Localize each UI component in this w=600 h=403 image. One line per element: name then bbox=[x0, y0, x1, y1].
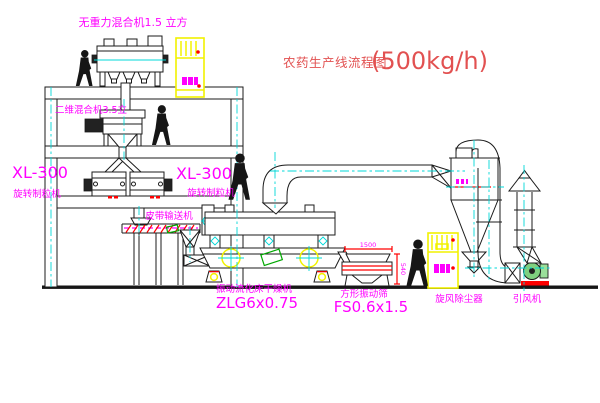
person-figure bbox=[152, 105, 170, 145]
label-granulator-left-name: 旋转制粒机 bbox=[13, 188, 61, 200]
label-mixer-top: 无重力混合机1.5 立方 bbox=[79, 15, 188, 29]
person-figure bbox=[407, 240, 428, 286]
label-fan: 引风机 bbox=[513, 293, 542, 305]
label-conveyor: 皮带输送机 bbox=[145, 210, 193, 222]
exhaust-stack bbox=[509, 171, 541, 264]
label-mixer-mid: 二维混合机3.5立 bbox=[55, 104, 127, 116]
process-flow-diagram: 农药生产线流程图 (500kg/h) 无重力混合机1.5 立方 二维混合机3.5… bbox=[0, 0, 600, 403]
diagram-canvas: 农药生产线流程图 (500kg/h) 无重力混合机1.5 立方 二维混合机3.5… bbox=[0, 0, 600, 403]
dimension-length: 1500 bbox=[360, 241, 377, 249]
label-dryer-model: ZLG6x0.75 bbox=[216, 294, 298, 312]
fluid-bed-dryer bbox=[200, 205, 352, 282]
granulator-right bbox=[130, 172, 172, 199]
person-figure bbox=[76, 50, 93, 86]
label-cyclone: 旋风除尘器 bbox=[435, 293, 483, 305]
granulator-left bbox=[84, 172, 126, 199]
exhaust-duct bbox=[263, 165, 451, 214]
gravity-free-mixer bbox=[92, 36, 168, 114]
label-sieve-model: FS0.6x1.5 bbox=[334, 298, 408, 316]
label-granulator-mid-name: 旋转制粒机 bbox=[187, 187, 235, 199]
dimension-height: 540 bbox=[399, 263, 407, 275]
induced-draft-fan bbox=[521, 263, 549, 286]
label-granulator-left-model: XL-300 bbox=[12, 163, 68, 182]
ground-line bbox=[42, 286, 598, 289]
diagram-title-capacity: (500kg/h) bbox=[371, 47, 488, 75]
control-cabinet-right bbox=[428, 233, 458, 288]
control-cabinet-top bbox=[176, 38, 204, 97]
y-split-chute bbox=[105, 158, 141, 172]
square-vibrating-sieve bbox=[342, 246, 400, 286]
label-granulator-mid-model: XL-300 bbox=[176, 164, 232, 183]
